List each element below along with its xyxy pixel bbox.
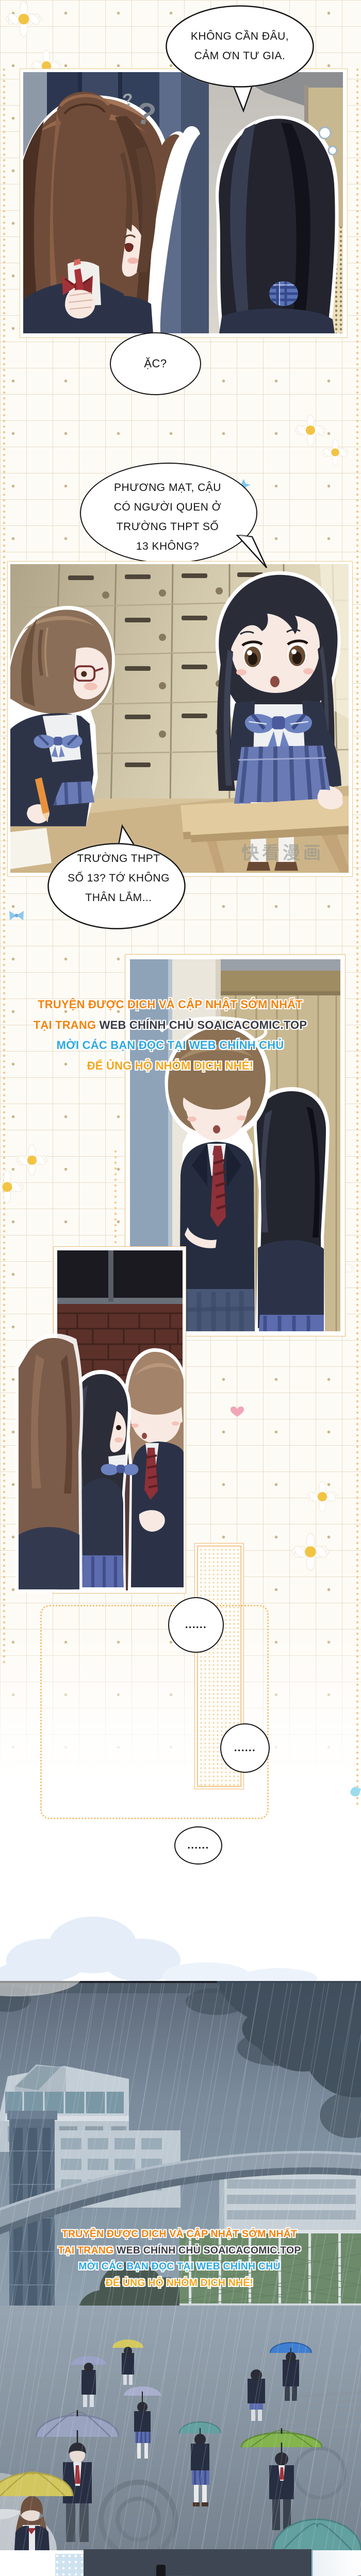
svg-text:快看漫画: 快看漫画 [241,843,324,863]
